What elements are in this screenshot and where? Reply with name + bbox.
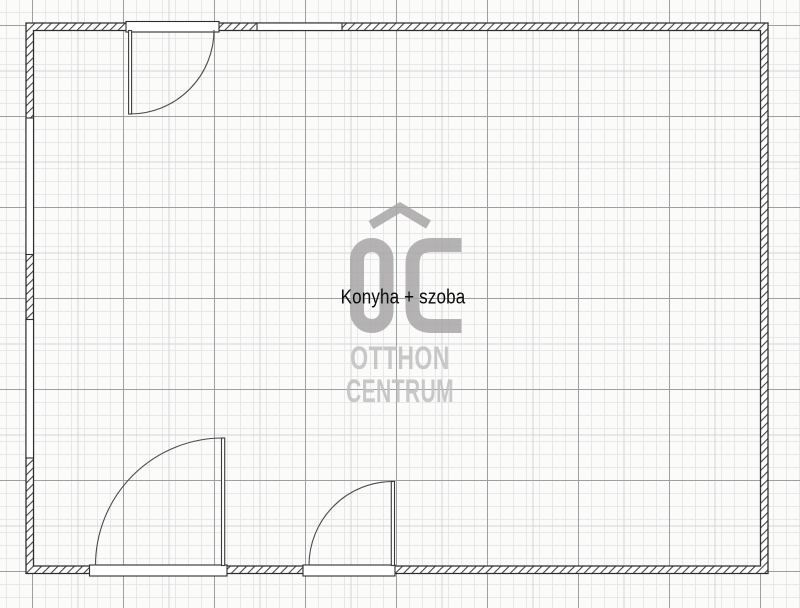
door-leaf-bottom-left [222,438,225,566]
room-label: Konyha + szoba [341,287,466,310]
window-left-upper [26,118,34,255]
door-frame-top [126,22,219,33]
door-swing-bottom-middle [309,482,393,566]
door-frame-bottom-left [90,565,228,576]
door-leaf-bottom-middle [391,482,394,566]
door-leaf-top [129,31,132,115]
door-frame-bottom-middle [303,565,395,576]
window-top [257,23,342,31]
window-left-lower [26,320,34,459]
door-swing-top [130,30,214,114]
floorplan-canvas: OTTHON CENTRUM Konyha + szoba [0,0,800,608]
door-swing-bottom-left [96,438,224,566]
